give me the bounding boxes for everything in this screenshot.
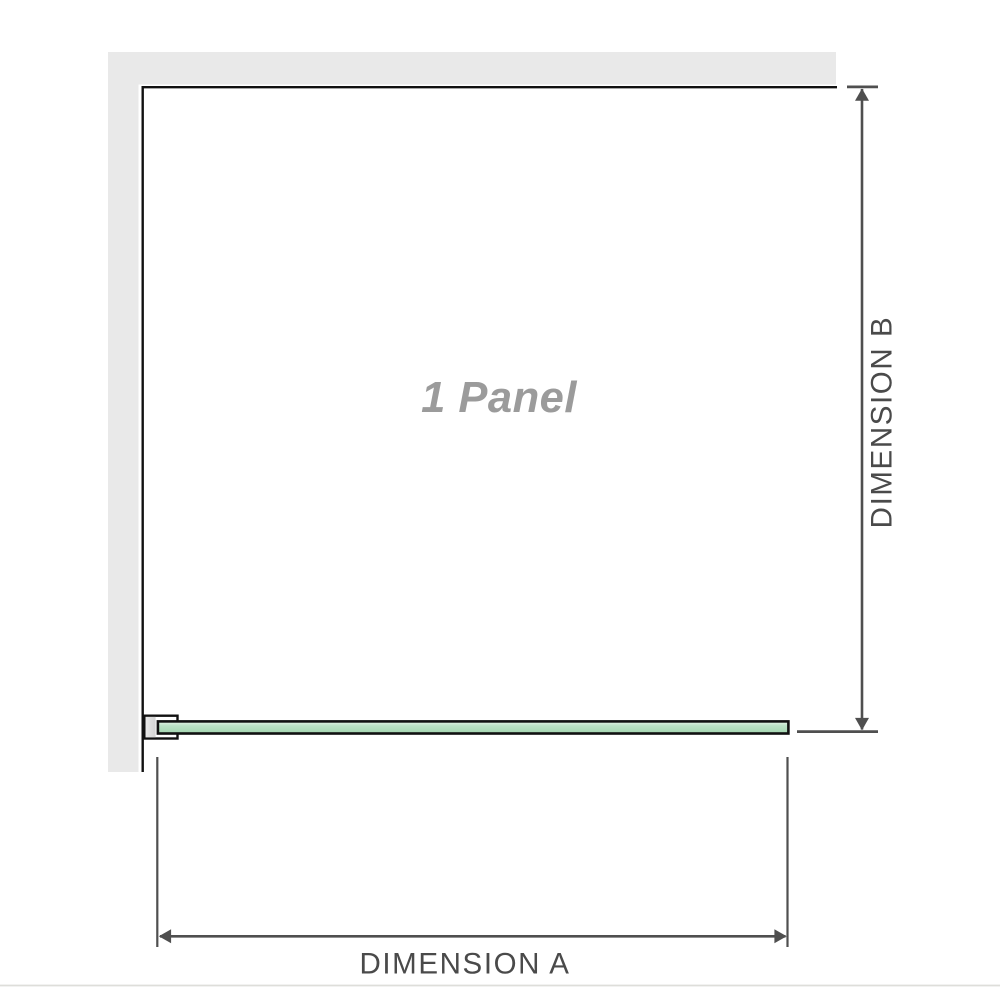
svg-text:1 Panel: 1 Panel (421, 374, 577, 422)
svg-text:DIMENSION A: DIMENSION A (359, 948, 570, 981)
svg-text:DIMENSION B: DIMENSION B (866, 316, 899, 529)
